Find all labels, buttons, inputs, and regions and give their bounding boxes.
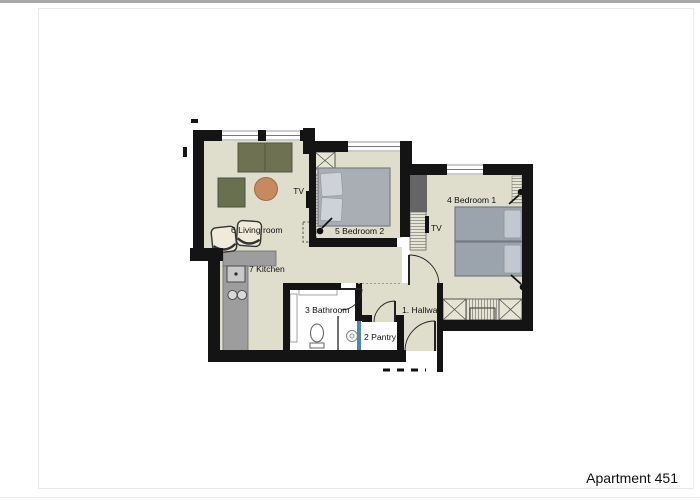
window <box>348 141 400 152</box>
pillow <box>504 245 521 273</box>
label-bedroom2: 5 Bedroom 2 <box>335 226 384 236</box>
tv-wall-mounted <box>306 191 310 208</box>
label-tv-bedroom1: TV <box>431 223 442 233</box>
shower-tray <box>290 294 297 342</box>
washing-machine <box>347 331 358 342</box>
tv-wall-mounted <box>425 216 429 233</box>
dresser <box>410 212 426 250</box>
label-living-room: 6 Living room <box>231 225 283 235</box>
bathroom-floor <box>290 290 355 351</box>
label-bathroom: 3 Bathroom <box>305 305 349 315</box>
pillow <box>504 210 521 238</box>
dark-unit <box>410 175 427 212</box>
toilet <box>311 324 324 342</box>
label-kitchen: 7 Kitchen <box>249 264 285 274</box>
label-hallway: 1. Hallway <box>402 305 442 315</box>
pillow <box>320 172 343 196</box>
window <box>266 130 300 141</box>
wardrobe-shelves <box>466 299 499 320</box>
apartment-title: Apartment 451 <box>586 470 678 486</box>
floorplan-page: 1. Hallway 2 Pantry 3 Bathroom 4 Bedroom… <box>0 0 700 500</box>
cooktop-burner <box>228 290 237 299</box>
wall-lamp <box>317 228 324 235</box>
label-tv-living: TV <box>293 186 304 196</box>
tv-stand <box>218 178 245 207</box>
cooktop-burner <box>237 290 246 299</box>
coffee-table <box>255 178 278 201</box>
window <box>447 164 483 175</box>
floorplan-drawing: 1. Hallway 2 Pantry 3 Bathroom 4 Bedroom… <box>0 0 700 500</box>
window <box>222 130 258 141</box>
label-pantry: 2 Pantry <box>364 332 397 342</box>
label-bedroom1: 4 Bedroom 1 <box>447 195 496 205</box>
shower-glass <box>357 320 361 351</box>
toilet-tank <box>310 343 324 348</box>
